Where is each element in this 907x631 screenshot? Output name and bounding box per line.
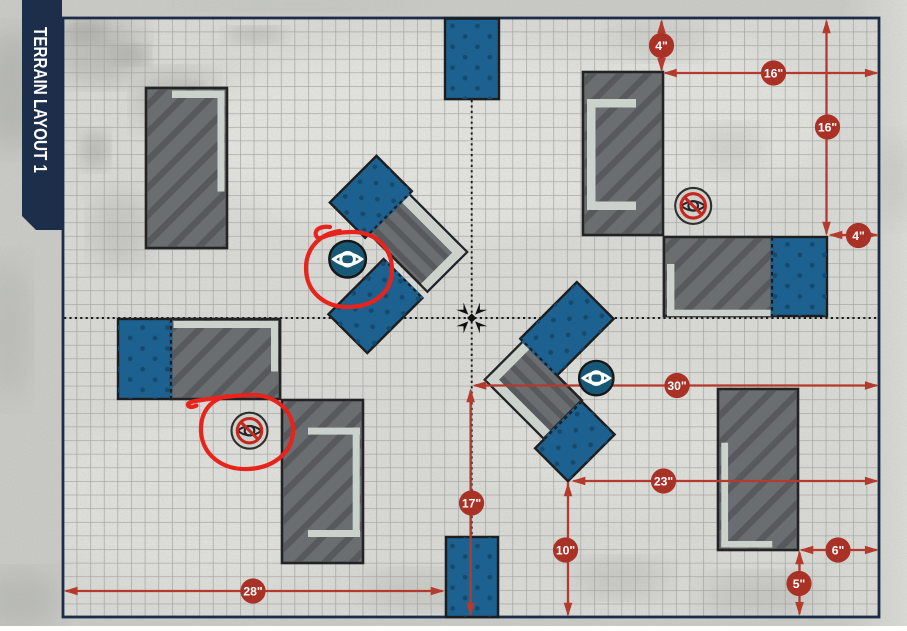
svg-text:6": 6" bbox=[832, 544, 845, 558]
svg-text:4": 4" bbox=[655, 39, 668, 53]
svg-text:16": 16" bbox=[818, 121, 837, 135]
svg-text:23": 23" bbox=[654, 475, 673, 489]
svg-text:TERRAIN LAYOUT 1: TERRAIN LAYOUT 1 bbox=[30, 27, 50, 173]
svg-text:5": 5" bbox=[793, 577, 806, 591]
svg-text:16": 16" bbox=[764, 67, 783, 81]
svg-text:17": 17" bbox=[462, 497, 481, 511]
svg-text:30": 30" bbox=[667, 379, 686, 393]
svg-text:4": 4" bbox=[852, 229, 865, 243]
svg-text:10": 10" bbox=[556, 544, 575, 558]
svg-text:28": 28" bbox=[243, 585, 262, 599]
